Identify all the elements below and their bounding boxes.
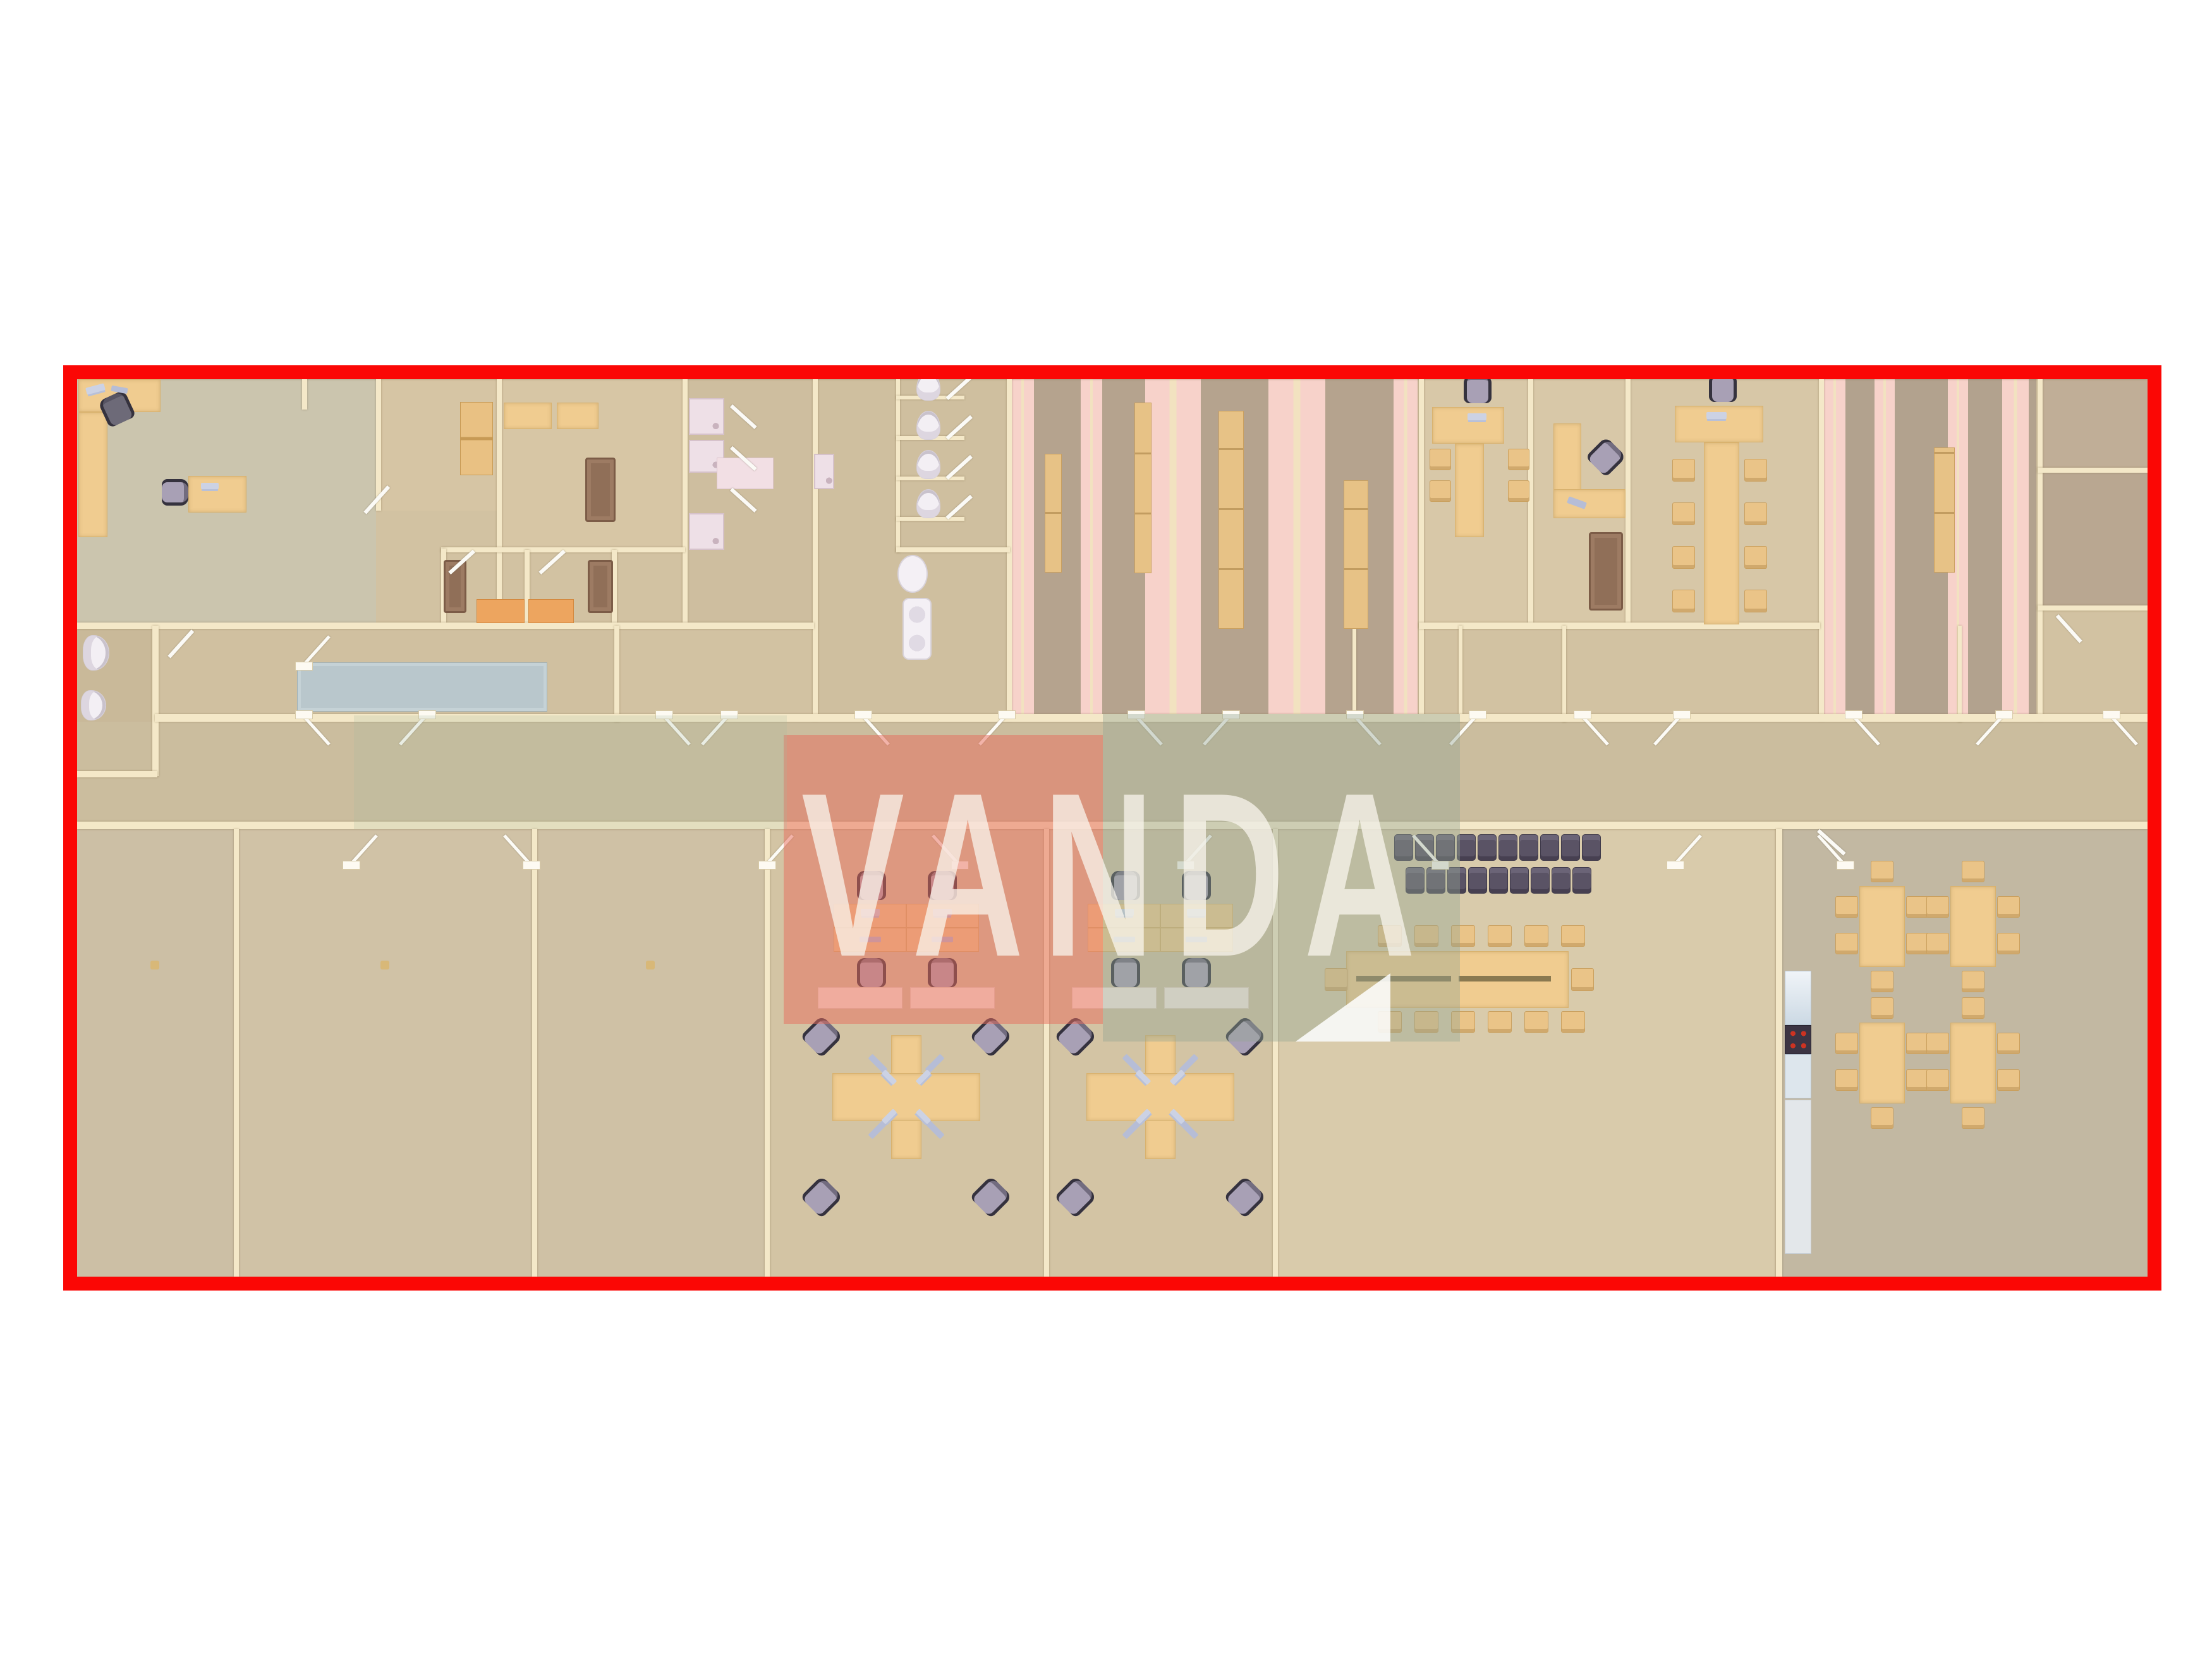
page: VANDA: [0, 0, 2212, 1659]
watermark-text: VANDA: [801, 758, 1435, 992]
